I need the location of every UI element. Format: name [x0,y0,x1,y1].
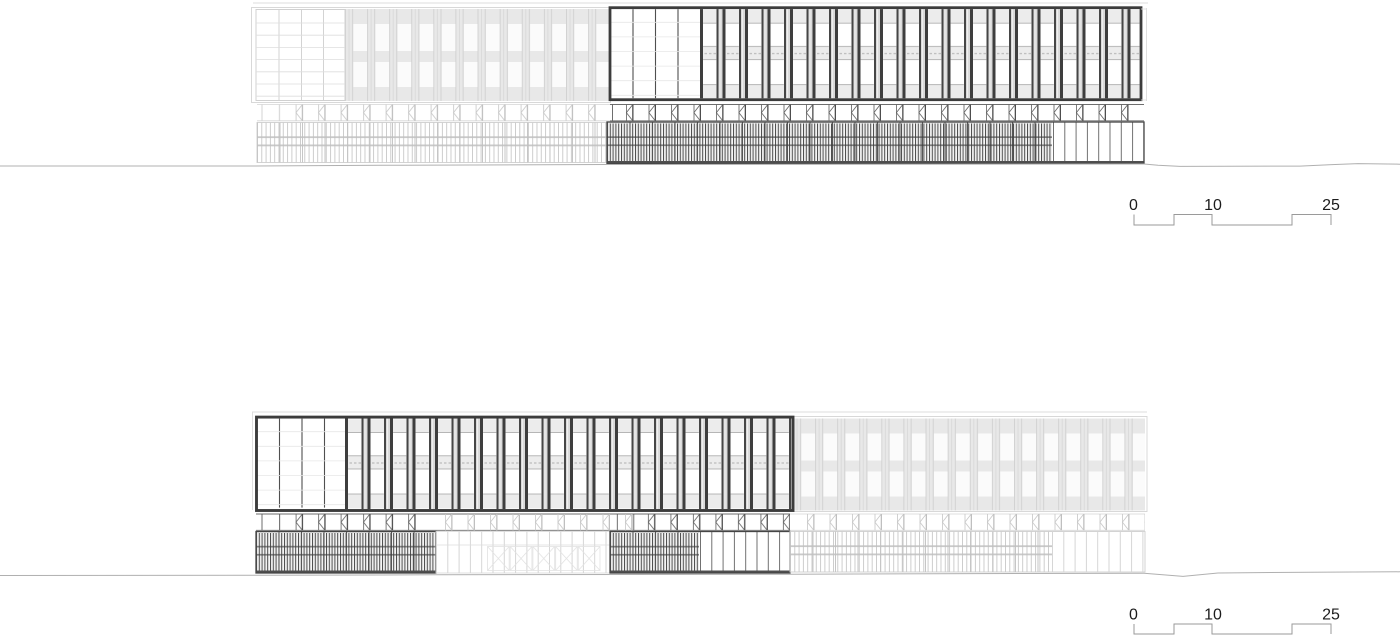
svg-text:10: 10 [1204,197,1222,214]
svg-text:25: 25 [1322,607,1340,624]
svg-text:10: 10 [1204,607,1222,624]
svg-text:0: 0 [1129,607,1138,624]
svg-text:0: 0 [1129,197,1138,214]
svg-text:25: 25 [1322,197,1340,214]
